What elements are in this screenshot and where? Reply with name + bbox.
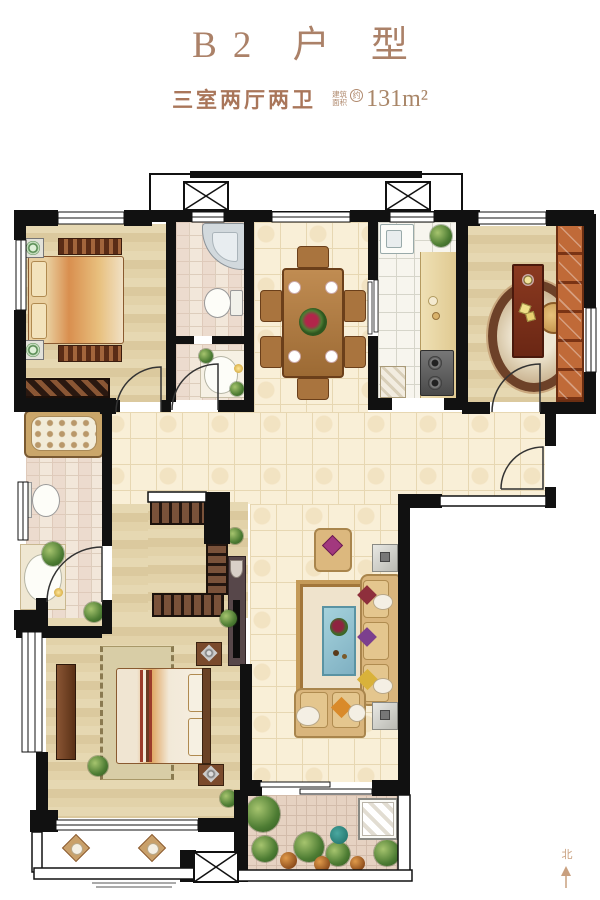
wall-segment xyxy=(212,336,246,344)
wall-segment xyxy=(166,212,176,402)
door-arc-powder-room xyxy=(172,364,218,410)
parapet xyxy=(236,870,412,881)
wall-segment xyxy=(14,610,38,630)
wall-segment xyxy=(30,810,58,832)
parapet xyxy=(398,795,410,877)
wall-segment xyxy=(14,210,58,226)
door-arc-study xyxy=(492,364,540,412)
wall-segment xyxy=(102,414,112,546)
wall-segment xyxy=(198,818,238,832)
door-arc-master-bathroom xyxy=(47,547,102,602)
wall-segment xyxy=(14,224,26,240)
plan-structure-layer xyxy=(0,0,600,900)
wall-segment xyxy=(218,400,254,412)
wall-segment xyxy=(14,310,26,402)
walls-layer xyxy=(14,210,596,882)
wall-segment xyxy=(368,336,378,402)
compass: 北 xyxy=(552,850,582,861)
parapet xyxy=(34,868,196,879)
wall-segment xyxy=(584,214,596,308)
door-arc-secondary-bedroom xyxy=(116,367,161,412)
wall-segment xyxy=(244,212,254,404)
wall-segment xyxy=(14,398,106,412)
doors-layer xyxy=(47,364,543,602)
wall-segment xyxy=(102,600,112,634)
wall-segment xyxy=(545,412,556,446)
floorplan-page: B2 户 型 三室两厅两卫 建筑 面积 约 131m² xyxy=(0,0,600,900)
wall-segment xyxy=(168,336,194,344)
sliding-door xyxy=(300,789,372,794)
door-arc-entry xyxy=(501,447,543,489)
parapet xyxy=(32,832,42,872)
sliding-door xyxy=(260,782,330,787)
wall-segment xyxy=(204,492,230,544)
wall-segment xyxy=(456,212,468,410)
compass-label: 北 xyxy=(562,849,573,861)
wall-segment xyxy=(398,505,410,782)
wall-segment xyxy=(372,780,410,796)
north-arrow-head xyxy=(561,866,571,876)
bay-window xyxy=(22,632,42,752)
parapet xyxy=(148,492,206,502)
kitchen-sliding-door xyxy=(368,282,372,334)
duct-protrusion xyxy=(150,171,462,212)
wall-segment xyxy=(240,664,252,792)
north-arrow-icon xyxy=(561,866,571,888)
parapet xyxy=(440,496,546,506)
wall-segment xyxy=(124,210,152,226)
duct-top-bar xyxy=(190,171,422,178)
wall-segment xyxy=(368,212,378,280)
wall-segment xyxy=(368,398,392,410)
wall-segment xyxy=(36,752,48,820)
kitchen-sliding-door xyxy=(374,280,378,332)
